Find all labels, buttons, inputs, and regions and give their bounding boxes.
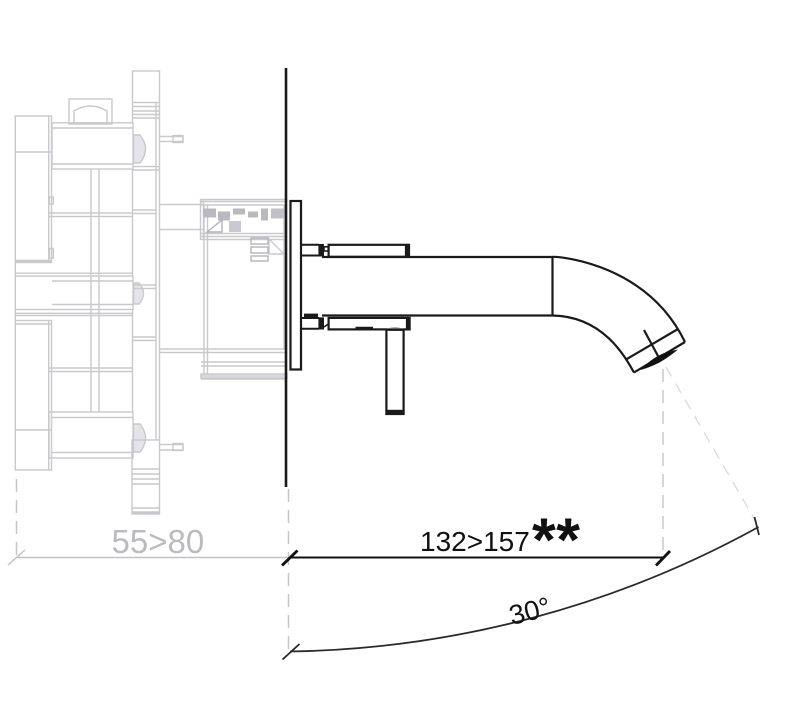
svg-text:132>157: 132>157: [420, 526, 530, 557]
svg-text:55>80: 55>80: [112, 523, 205, 560]
svg-text:30°: 30°: [506, 591, 554, 631]
svg-text:**: **: [532, 506, 580, 574]
